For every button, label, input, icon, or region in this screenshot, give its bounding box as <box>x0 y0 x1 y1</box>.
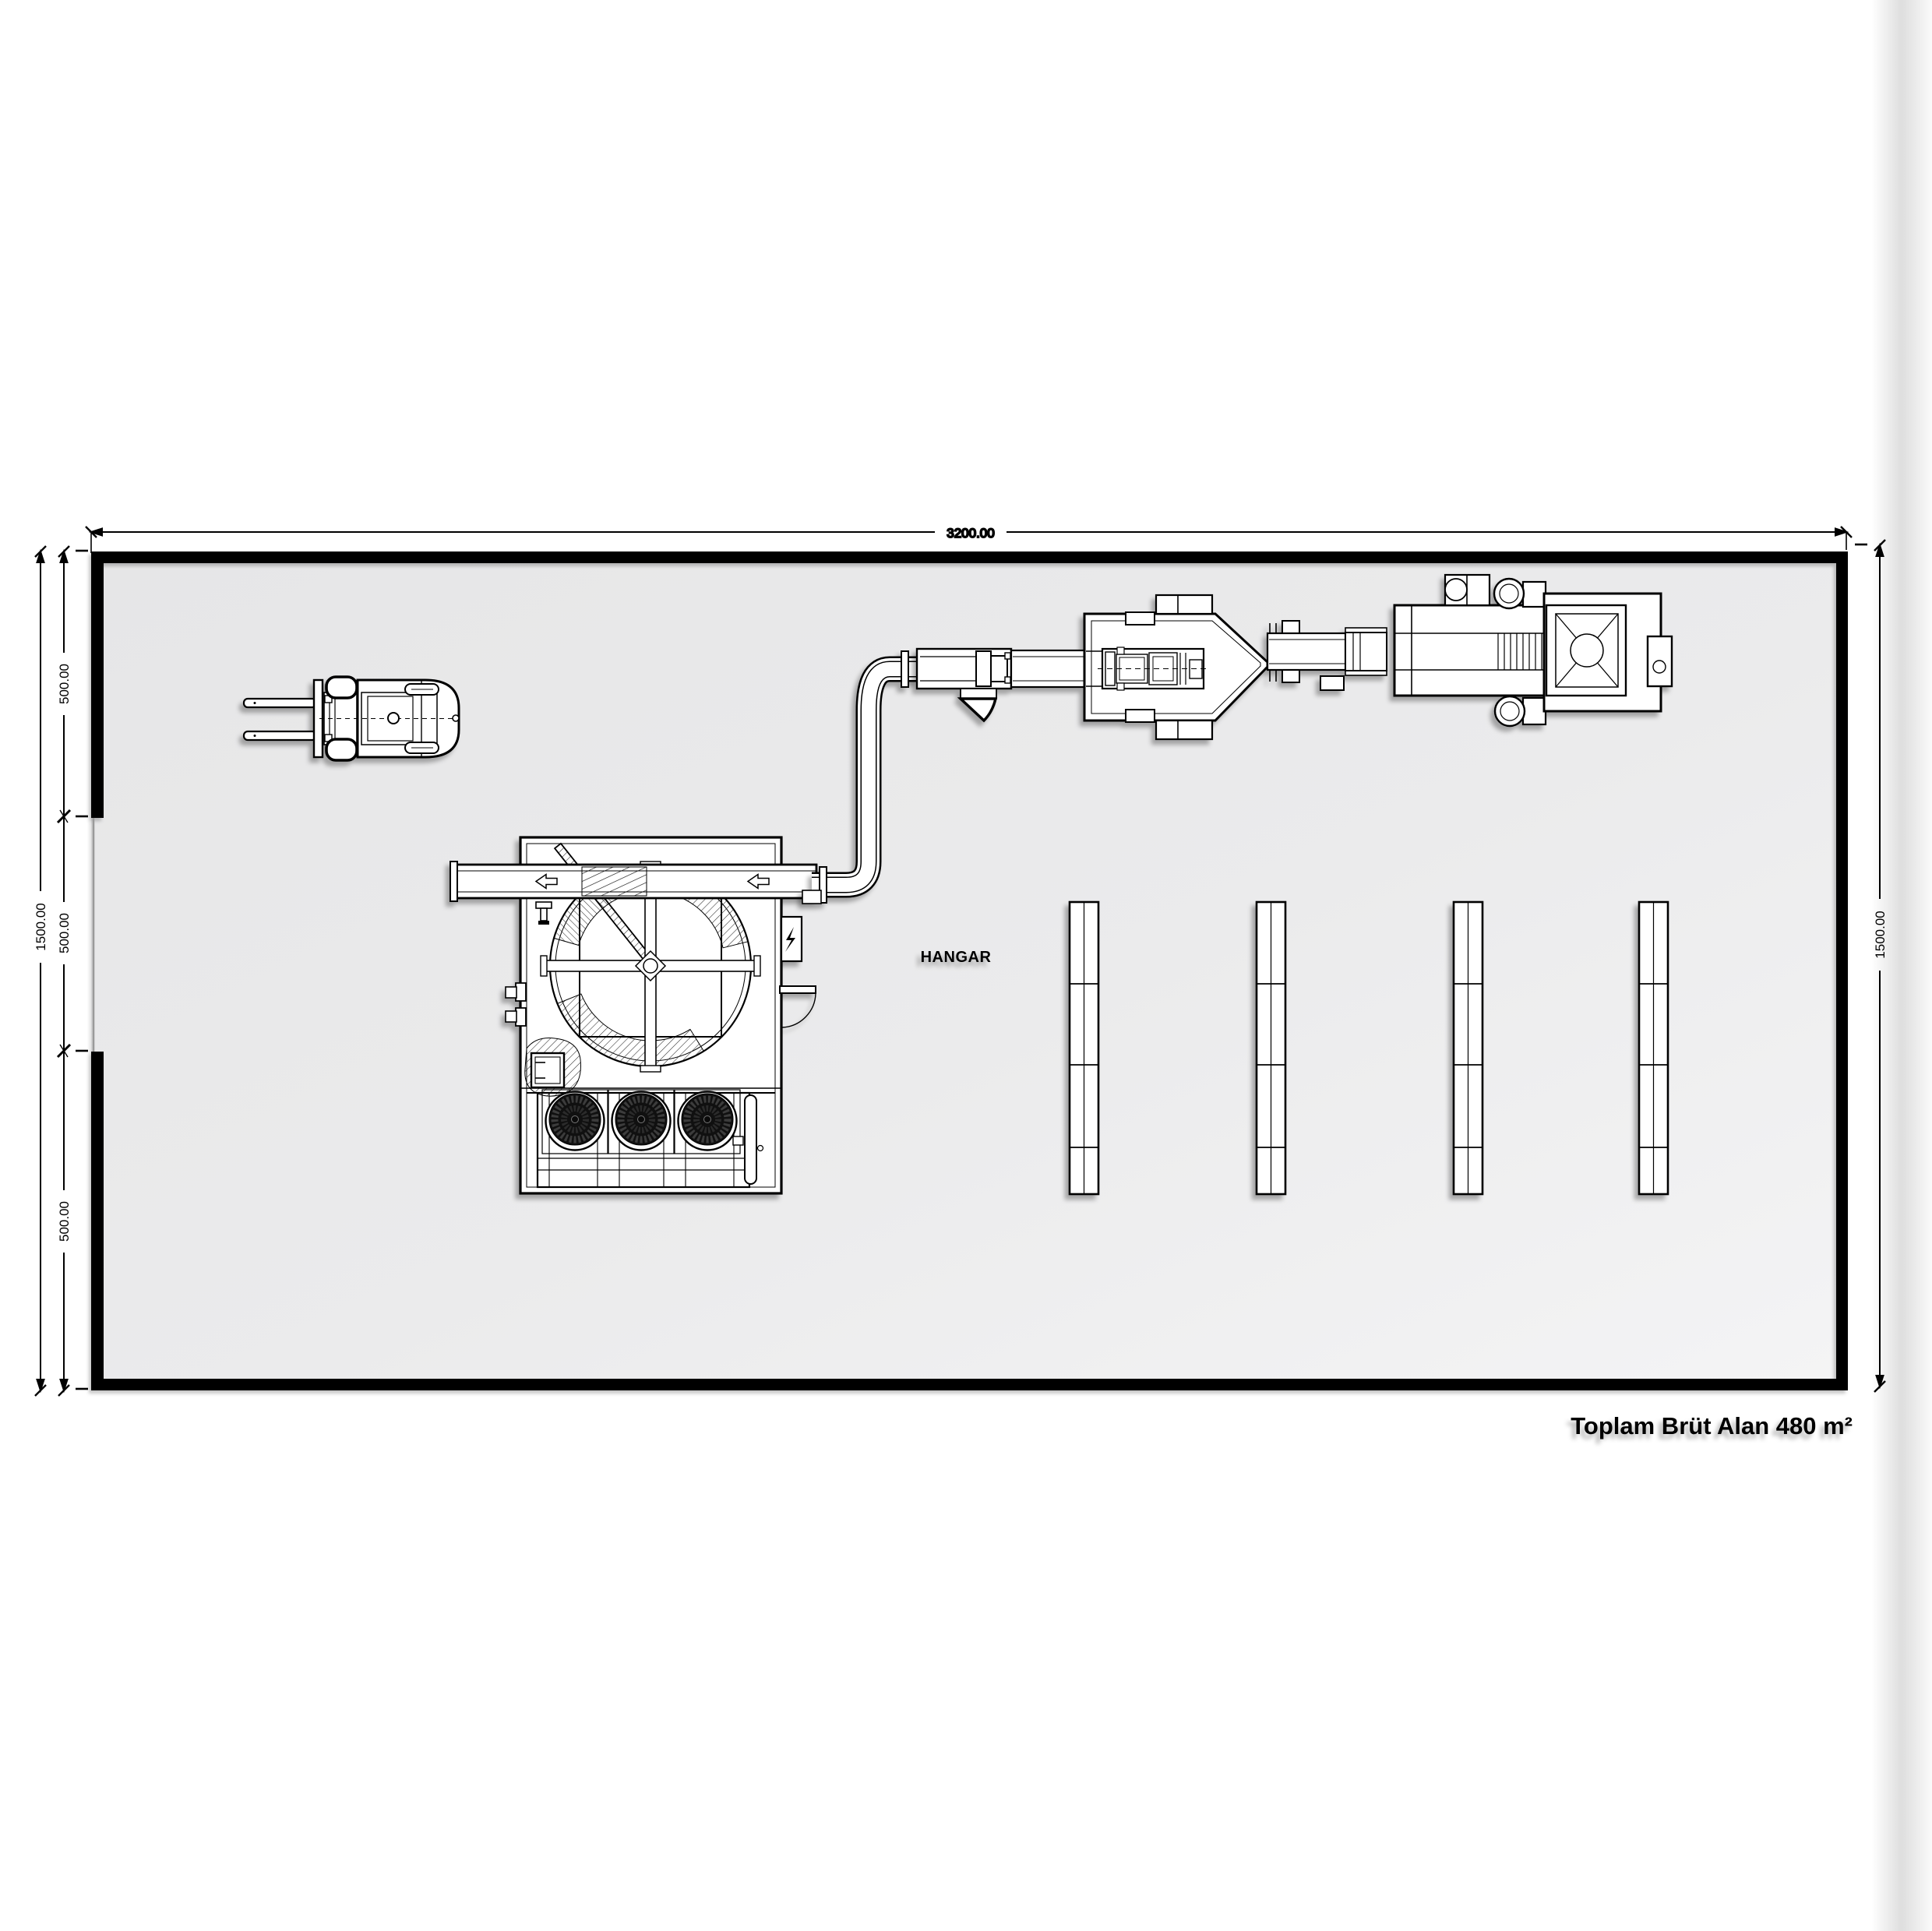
dim-label-left-overall: 1500.00 <box>33 903 48 950</box>
pipe-connector <box>802 890 821 904</box>
drain-tube <box>745 1095 756 1184</box>
funnel-neck <box>961 689 996 699</box>
housing-block-bottom <box>1156 721 1212 739</box>
room-label: HANGAR <box>921 949 992 966</box>
pallet-rack-1 <box>1070 902 1098 1194</box>
pipe-flange-top <box>901 651 908 687</box>
pallet-rack-2 <box>1257 902 1285 1194</box>
housing-block-top-small <box>1126 612 1155 625</box>
fan-3 <box>679 1092 737 1150</box>
front-wheel-bottom <box>326 739 357 760</box>
steering-wheel <box>388 713 399 724</box>
access-door <box>525 1038 581 1097</box>
total-area-note: Toplam Brüt Alan 480 m² <box>1571 1412 1853 1439</box>
front-wheel-top <box>326 677 357 698</box>
fan-1 <box>546 1092 605 1150</box>
dimension-left-segments: 500.00 500.00 500.00 <box>53 546 88 1396</box>
electrical-box <box>781 917 802 961</box>
housing-block-bottom-small <box>1126 710 1155 722</box>
housing-block-top <box>1156 595 1212 614</box>
carriage <box>1098 647 1210 690</box>
control-box <box>1648 636 1672 686</box>
pallet-rack-4 <box>1639 902 1668 1194</box>
band-bracket <box>1320 676 1344 690</box>
dim-label-left-seg-2: 500.00 <box>57 913 72 953</box>
dimension-top: 3200.00 <box>86 520 1852 553</box>
motor-bottom <box>1495 696 1546 726</box>
motor-top-left <box>1445 575 1490 605</box>
dim-label-left-seg-3: 500.00 <box>57 1201 72 1242</box>
fan-2 <box>612 1092 671 1150</box>
drum-hub <box>643 959 658 973</box>
x-table <box>1546 605 1626 696</box>
motor-top-right <box>1494 579 1546 608</box>
conveyor-band <box>1267 633 1345 670</box>
dimension-left-overall: 1500.00 <box>30 546 50 1396</box>
flange-section <box>1345 628 1387 675</box>
dim-label-top-width: 3200.00 <box>947 526 994 541</box>
tow-pin <box>453 715 459 721</box>
barrel <box>1011 650 1086 687</box>
dim-label-left-seg-1: 500.00 <box>57 664 72 704</box>
cad-drawing-canvas: 3200.00 1500.00 500.00 500.0 <box>0 0 1932 1931</box>
main-block <box>1394 605 1546 696</box>
page-edge-shading <box>1871 0 1932 1931</box>
floor-plan-svg: 3200.00 1500.00 500.00 500.0 <box>0 0 1932 1931</box>
pallet-rack-3 <box>1454 902 1482 1194</box>
